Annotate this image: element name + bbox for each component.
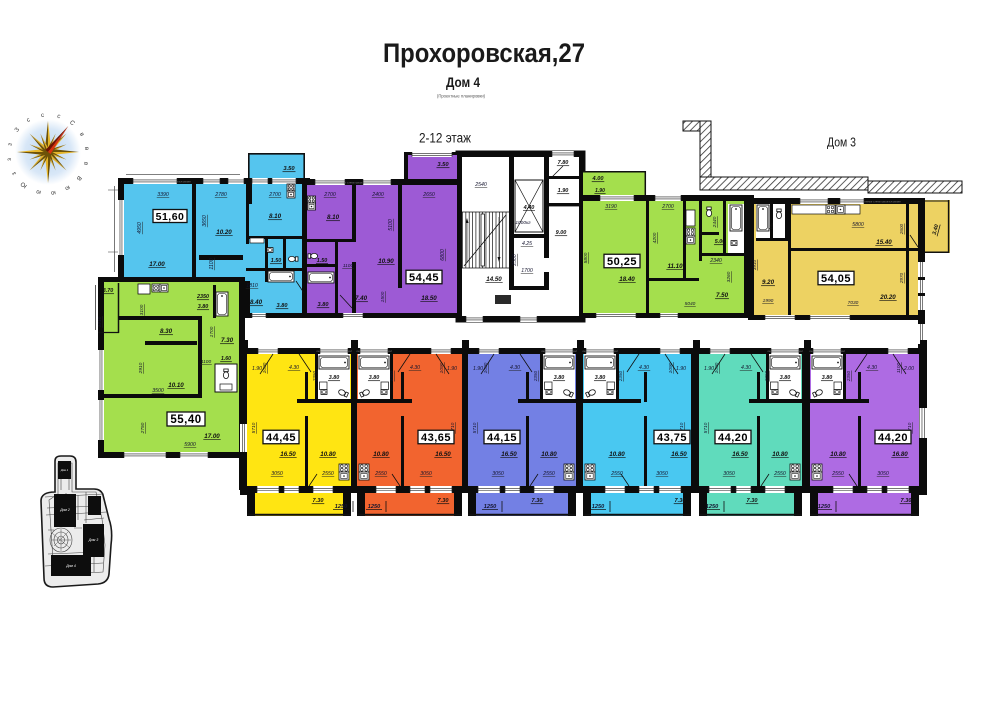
svg-text:3.80: 3.80 xyxy=(595,375,606,381)
svg-text:2540: 2540 xyxy=(474,182,487,188)
svg-text:16.50: 16.50 xyxy=(435,451,451,458)
svg-text:5800: 5800 xyxy=(583,252,589,263)
svg-text:54,05: 54,05 xyxy=(821,273,851,285)
svg-text:2700: 2700 xyxy=(268,192,281,198)
svg-text:10.80: 10.80 xyxy=(609,451,625,458)
svg-text:1810: 1810 xyxy=(246,283,258,289)
svg-text:16.50: 16.50 xyxy=(732,451,748,458)
svg-text:44,15: 44,15 xyxy=(487,432,517,444)
svg-text:1250: 1250 xyxy=(335,504,348,510)
svg-text:1000кг: 1000кг xyxy=(515,220,531,226)
svg-text:2650: 2650 xyxy=(422,192,435,198)
svg-text:10.10: 10.10 xyxy=(168,382,184,389)
svg-text:2550: 2550 xyxy=(831,471,844,477)
svg-text:1100: 1100 xyxy=(896,363,902,374)
svg-text:4200: 4200 xyxy=(652,232,658,243)
svg-text:(Проектные планировки): (Проектные планировки) xyxy=(437,94,486,99)
svg-text:3.80: 3.80 xyxy=(822,375,833,381)
svg-text:8.40: 8.40 xyxy=(250,299,263,306)
svg-text:3190: 3190 xyxy=(605,204,617,210)
svg-text:7.80: 7.80 xyxy=(558,160,569,166)
svg-text:2.00: 2.00 xyxy=(903,366,914,372)
svg-text:16.80: 16.80 xyxy=(892,451,908,458)
svg-text:4.30: 4.30 xyxy=(510,365,520,371)
svg-text:6800: 6800 xyxy=(440,249,446,261)
svg-text:1090: 1090 xyxy=(262,362,268,373)
svg-text:2750: 2750 xyxy=(140,422,146,434)
svg-text:Прохоровская,27: Прохоровская,27 xyxy=(383,38,585,68)
svg-text:2350: 2350 xyxy=(846,370,851,382)
svg-text:3910: 3910 xyxy=(752,259,757,270)
svg-text:17.00: 17.00 xyxy=(204,433,220,440)
svg-text:2440: 2440 xyxy=(712,216,718,228)
svg-text:1100: 1100 xyxy=(201,359,212,365)
svg-text:55,40: 55,40 xyxy=(170,414,201,426)
svg-text:3.80: 3.80 xyxy=(198,304,209,310)
svg-text:2550: 2550 xyxy=(374,471,387,477)
svg-text:44,20: 44,20 xyxy=(878,432,908,444)
svg-text:3.80: 3.80 xyxy=(329,375,340,381)
svg-text:3050: 3050 xyxy=(877,471,889,477)
svg-text:1.60: 1.60 xyxy=(221,356,231,362)
svg-text:1090: 1090 xyxy=(714,362,720,373)
svg-text:3390: 3390 xyxy=(157,192,169,198)
svg-text:16.50: 16.50 xyxy=(671,451,687,458)
svg-text:3050: 3050 xyxy=(656,471,668,477)
svg-text:3500: 3500 xyxy=(152,388,164,394)
svg-text:7.30: 7.30 xyxy=(221,337,234,344)
svg-text:3.80: 3.80 xyxy=(780,375,791,381)
svg-text:1.90: 1.90 xyxy=(676,366,686,372)
svg-text:14.50: 14.50 xyxy=(486,276,502,283)
svg-text:7.30: 7.30 xyxy=(313,498,325,504)
svg-text:8.30: 8.30 xyxy=(160,328,173,335)
svg-text:7.50: 7.50 xyxy=(716,292,729,299)
svg-text:20.20: 20.20 xyxy=(879,294,896,301)
svg-text:Дом 4: Дом 4 xyxy=(65,564,76,568)
svg-text:2350: 2350 xyxy=(764,370,769,382)
svg-text:5100: 5100 xyxy=(388,219,394,231)
svg-text:4.30: 4.30 xyxy=(289,365,299,371)
svg-text:3050: 3050 xyxy=(420,471,432,477)
svg-text:7.30: 7.30 xyxy=(901,498,913,504)
svg-text:1.50: 1.50 xyxy=(317,258,328,264)
svg-text:2350: 2350 xyxy=(618,370,623,382)
svg-text:1.90: 1.90 xyxy=(447,366,457,372)
svg-text:1100: 1100 xyxy=(343,263,354,269)
svg-text:1.90: 1.90 xyxy=(704,366,714,372)
svg-text:1250: 1250 xyxy=(484,504,497,510)
svg-text:44,45: 44,45 xyxy=(266,432,296,444)
svg-text:50,25: 50,25 xyxy=(607,256,637,268)
svg-text:2700: 2700 xyxy=(661,204,674,210)
svg-text:3100: 3100 xyxy=(139,304,145,315)
svg-text:3050: 3050 xyxy=(492,471,504,477)
svg-text:1.90: 1.90 xyxy=(473,366,483,372)
svg-text:Дом 2: Дом 2 xyxy=(59,508,70,512)
svg-text:1.90: 1.90 xyxy=(595,188,605,194)
svg-text:1990: 1990 xyxy=(763,298,774,304)
svg-text:1090: 1090 xyxy=(668,362,674,373)
svg-text:Дом 4: Дом 4 xyxy=(446,75,480,90)
svg-text:1090: 1090 xyxy=(439,362,445,373)
svg-text:10.80: 10.80 xyxy=(830,451,846,458)
svg-text:2550: 2550 xyxy=(610,471,623,477)
svg-text:1250: 1250 xyxy=(818,504,831,510)
svg-text:3.80: 3.80 xyxy=(277,303,289,309)
svg-text:1100: 1100 xyxy=(209,258,215,269)
svg-text:2400: 2400 xyxy=(371,192,384,198)
svg-text:2350: 2350 xyxy=(533,370,538,382)
svg-text:9.20: 9.20 xyxy=(762,279,775,286)
svg-text:10.80: 10.80 xyxy=(772,451,788,458)
svg-text:5900: 5900 xyxy=(184,442,196,448)
svg-text:2340: 2340 xyxy=(709,258,722,264)
svg-text:4.30: 4.30 xyxy=(741,365,751,371)
svg-text:2500: 2500 xyxy=(512,254,518,267)
svg-text:1500: 1500 xyxy=(380,291,386,302)
svg-text:18.40: 18.40 xyxy=(619,276,635,283)
svg-text:7.30: 7.30 xyxy=(747,498,759,504)
svg-text:2780: 2780 xyxy=(214,192,227,198)
svg-text:1.90: 1.90 xyxy=(558,188,569,194)
svg-text:4.25: 4.25 xyxy=(522,241,532,247)
svg-text:4.30: 4.30 xyxy=(639,365,649,371)
svg-text:7.30: 7.30 xyxy=(675,498,687,504)
svg-text:44,20: 44,20 xyxy=(718,432,748,444)
svg-text:2350: 2350 xyxy=(196,294,209,300)
svg-text:1250: 1250 xyxy=(706,504,719,510)
svg-text:18.50: 18.50 xyxy=(421,295,437,302)
svg-text:2910: 2910 xyxy=(138,362,144,374)
svg-text:2600: 2600 xyxy=(899,223,904,235)
svg-text:51,60: 51,60 xyxy=(156,211,185,223)
svg-text:5710: 5710 xyxy=(472,422,478,433)
svg-text:2350: 2350 xyxy=(389,370,394,382)
svg-text:2550: 2550 xyxy=(321,471,334,477)
svg-text:10.90: 10.90 xyxy=(378,258,394,265)
svg-text:15.40: 15.40 xyxy=(876,239,892,246)
svg-text:3.70: 3.70 xyxy=(103,288,114,294)
svg-text:Дом 1: Дом 1 xyxy=(60,468,69,472)
svg-text:16.50: 16.50 xyxy=(280,451,296,458)
svg-text:4.40: 4.40 xyxy=(523,205,535,211)
svg-text:3.80: 3.80 xyxy=(369,375,380,381)
svg-text:1250: 1250 xyxy=(592,504,605,510)
svg-text:3050: 3050 xyxy=(723,471,735,477)
svg-text:4.30: 4.30 xyxy=(410,365,420,371)
svg-text:2350: 2350 xyxy=(312,370,317,382)
svg-text:2550: 2550 xyxy=(542,471,555,477)
svg-text:11.10: 11.10 xyxy=(667,263,683,270)
svg-text:Дом 3: Дом 3 xyxy=(827,136,856,150)
svg-text:2-12 этаж: 2-12 этаж xyxy=(419,131,471,146)
svg-text:54,45: 54,45 xyxy=(409,272,439,284)
svg-text:3.50: 3.50 xyxy=(437,162,449,168)
svg-text:3650: 3650 xyxy=(202,215,208,227)
svg-text:1250: 1250 xyxy=(368,504,381,510)
svg-text:7.30: 7.30 xyxy=(438,498,450,504)
svg-text:1700: 1700 xyxy=(209,326,215,337)
svg-text:5710: 5710 xyxy=(703,422,709,433)
svg-text:2550: 2550 xyxy=(773,471,786,477)
svg-text:3.50: 3.50 xyxy=(283,166,295,172)
svg-text:43,75: 43,75 xyxy=(657,432,687,444)
svg-text:4.00: 4.00 xyxy=(592,176,605,182)
svg-text:3050: 3050 xyxy=(271,471,283,477)
svg-text:1.50: 1.50 xyxy=(271,258,282,264)
svg-text:8.10: 8.10 xyxy=(327,214,340,221)
svg-text:3260: 3260 xyxy=(726,271,732,282)
svg-text:5800: 5800 xyxy=(852,222,864,228)
svg-text:17.00: 17.00 xyxy=(149,261,165,268)
svg-text:3.80: 3.80 xyxy=(318,302,330,308)
svg-text:7.30: 7.30 xyxy=(532,498,544,504)
svg-text:5710: 5710 xyxy=(251,422,257,433)
svg-text:1.90: 1.90 xyxy=(252,366,262,372)
svg-text:3.80: 3.80 xyxy=(554,375,565,381)
svg-text:10.20: 10.20 xyxy=(216,229,232,236)
svg-text:4950: 4950 xyxy=(137,222,143,234)
svg-text:10.80: 10.80 xyxy=(320,451,336,458)
svg-text:4.30: 4.30 xyxy=(867,365,877,371)
svg-text:7030: 7030 xyxy=(848,300,859,306)
svg-text:9.00: 9.00 xyxy=(556,230,567,236)
svg-text:2700: 2700 xyxy=(323,192,336,198)
svg-text:2970: 2970 xyxy=(899,272,904,284)
svg-text:5040: 5040 xyxy=(685,301,696,307)
svg-text:1090: 1090 xyxy=(483,362,489,373)
svg-text:43,65: 43,65 xyxy=(421,432,451,444)
svg-text:10.80: 10.80 xyxy=(373,451,389,458)
svg-text:10.80: 10.80 xyxy=(541,451,557,458)
svg-text:16.50: 16.50 xyxy=(501,451,517,458)
svg-text:1700: 1700 xyxy=(521,268,533,274)
svg-text:7.40: 7.40 xyxy=(355,295,368,302)
svg-text:НАРУЖНЫЕ СТЕНЫ ГАЗОБЛОК 400ММ: НАРУЖНЫЕ СТЕНЫ ГАЗОБЛОК 400ММ xyxy=(860,201,901,204)
svg-text:1210: 1210 xyxy=(97,316,103,327)
svg-text:8.10: 8.10 xyxy=(269,213,282,220)
svg-text:Дом 3: Дом 3 xyxy=(88,538,99,542)
